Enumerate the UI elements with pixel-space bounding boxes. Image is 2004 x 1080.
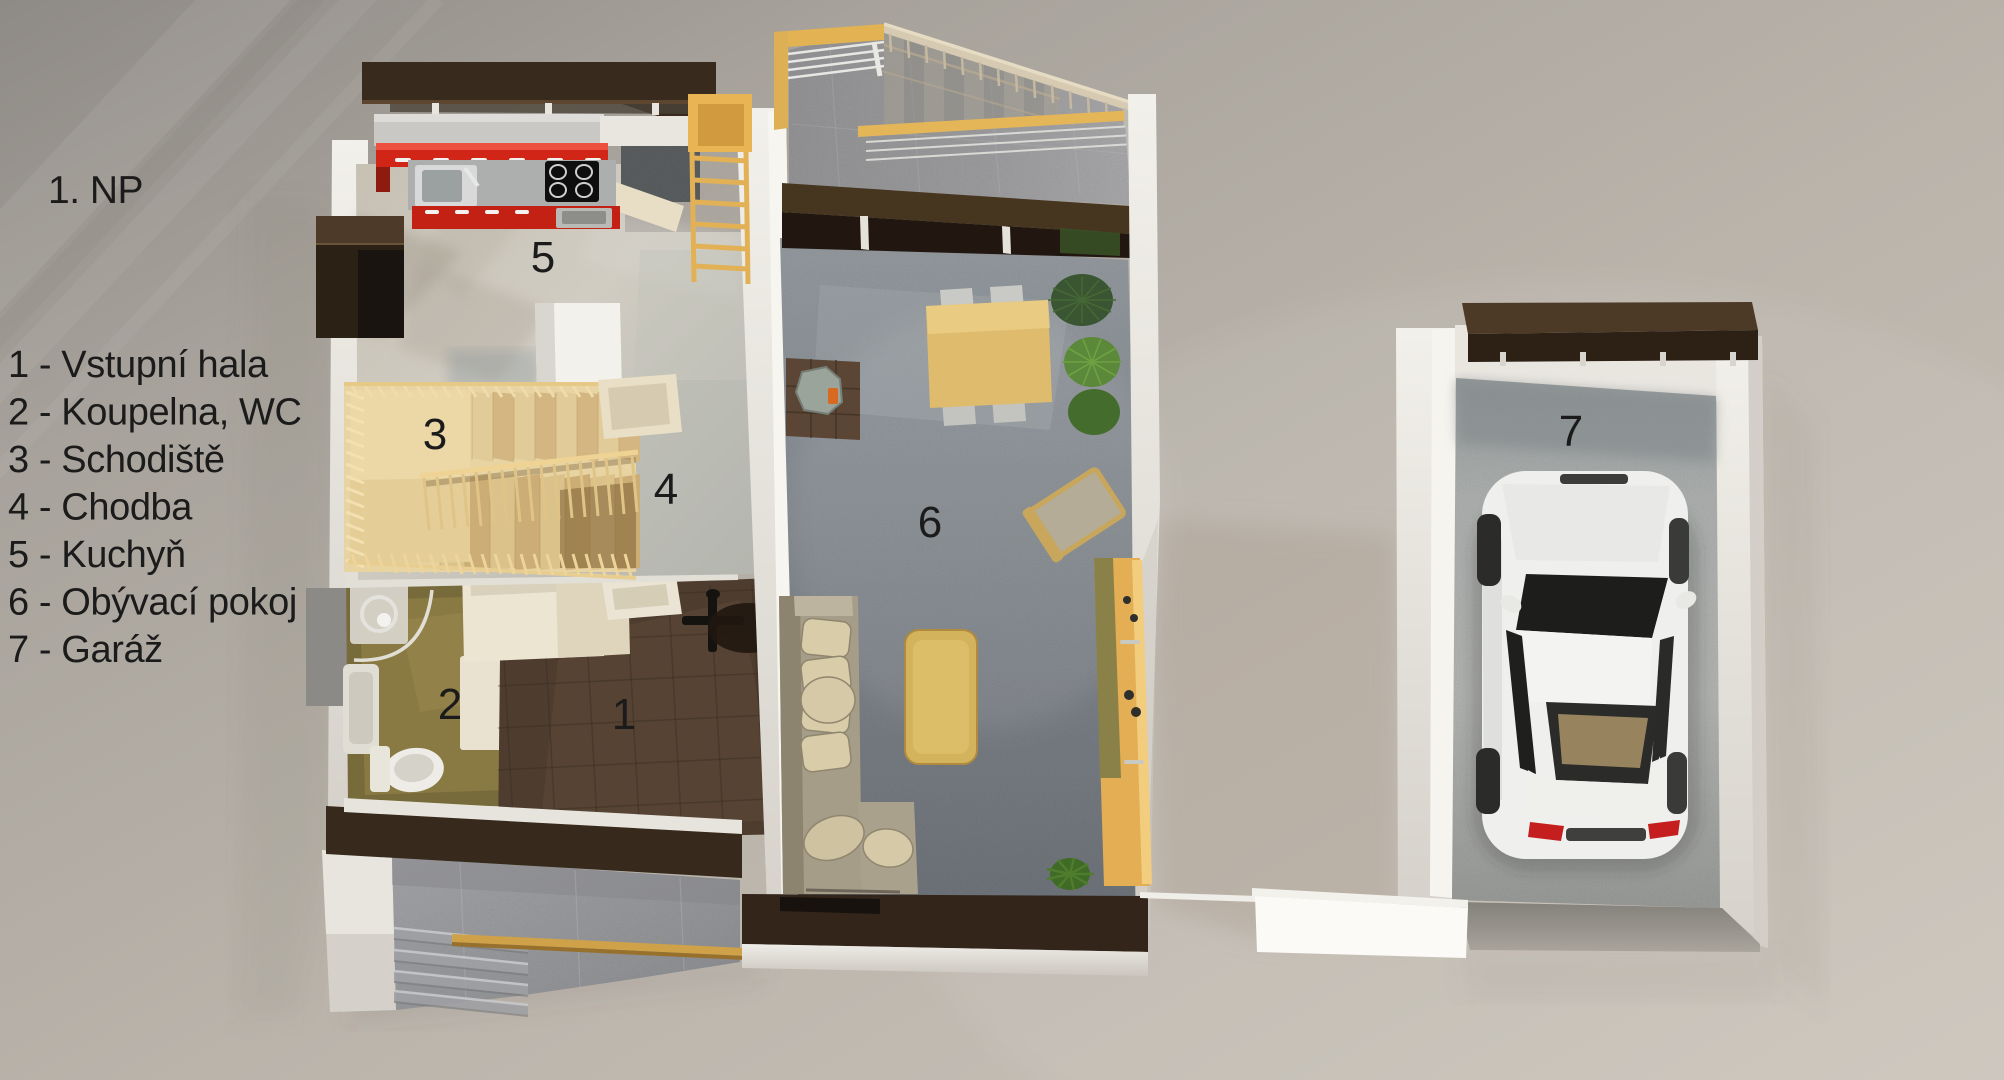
svg-text:3 - Schodiště: 3 - Schodiště	[8, 439, 225, 481]
svg-text:2: 2	[438, 680, 462, 729]
svg-text:6 - Obývací pokoj: 6 - Obývací pokoj	[8, 582, 297, 624]
svg-text:6: 6	[918, 498, 942, 547]
svg-text:4 - Chodba: 4 - Chodba	[8, 487, 193, 529]
svg-text:1: 1	[612, 690, 636, 739]
svg-text:5 - Kuchyň: 5 - Kuchyň	[8, 534, 186, 576]
svg-text:2 - Koupelna, WC: 2 - Koupelna, WC	[8, 392, 302, 434]
svg-text:7: 7	[1559, 407, 1583, 456]
svg-text:4: 4	[654, 465, 678, 514]
svg-text:1 - Vstupní hala: 1 - Vstupní hala	[8, 344, 269, 386]
svg-text:5: 5	[531, 233, 555, 282]
svg-text:7 - Garáž: 7 - Garáž	[8, 629, 163, 671]
svg-text:3: 3	[423, 410, 447, 459]
svg-text:1. NP: 1. NP	[48, 169, 143, 212]
